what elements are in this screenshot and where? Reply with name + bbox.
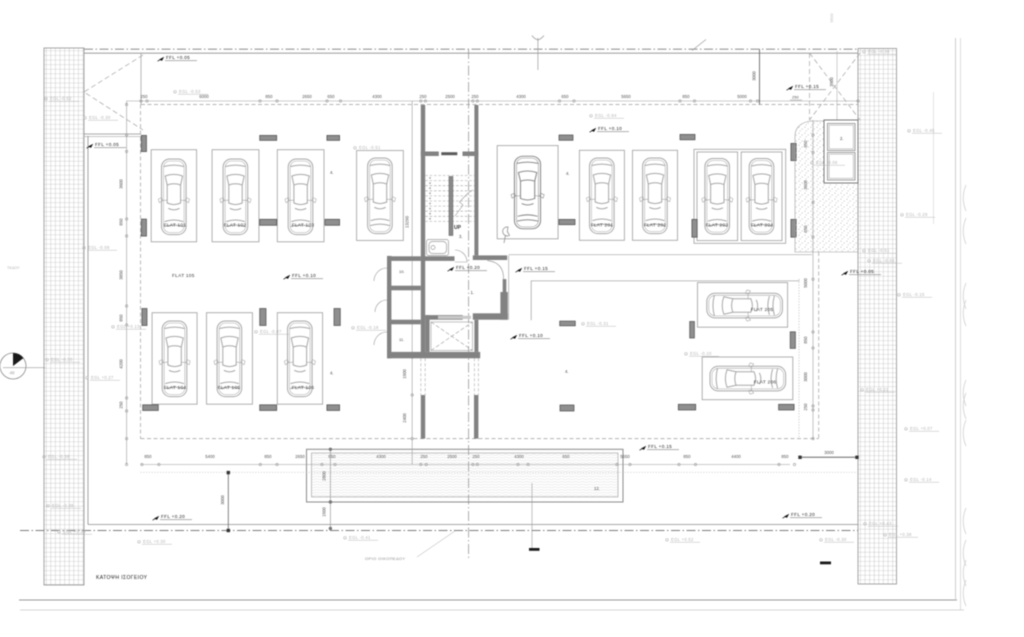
svg-text:FFL +0.10: FFL +0.10: [598, 126, 622, 131]
svg-text:4.: 4.: [566, 171, 570, 176]
svg-text:3000: 3000: [752, 71, 757, 81]
svg-text:EGL +0.34: EGL +0.34: [63, 529, 86, 534]
svg-text:850: 850: [119, 314, 124, 322]
svg-text:EGL -0.30: EGL -0.30: [51, 357, 73, 362]
svg-text:2500: 2500: [445, 94, 455, 99]
svg-text:850: 850: [803, 336, 808, 344]
svg-text:EGL -0.10: EGL -0.10: [690, 351, 712, 356]
svg-text:650: 650: [327, 94, 335, 99]
svg-text:EGL +0.43: EGL +0.43: [869, 521, 892, 526]
svg-text:FLAT 203: FLAT 203: [706, 223, 729, 229]
svg-text:EGL +0.52: EGL +0.52: [671, 537, 694, 542]
svg-text:EGL -0.06: EGL -0.06: [816, 160, 838, 165]
svg-text:FFL +0.05: FFL +0.05: [95, 142, 119, 147]
svg-text:FLAT 206: FLAT 206: [754, 380, 777, 386]
svg-text:13290: 13290: [405, 215, 410, 228]
svg-text:4300: 4300: [372, 94, 382, 99]
svg-text:EGL -0.18: EGL -0.18: [357, 325, 379, 330]
svg-text:850: 850: [144, 454, 152, 459]
svg-text:FLAT 204: FLAT 204: [751, 223, 774, 229]
svg-text:EGL -0.30: EGL -0.30: [89, 115, 111, 120]
svg-text:EGL -0.53: EGL -0.53: [179, 89, 201, 94]
svg-text:9500: 9500: [829, 13, 834, 23]
svg-text:250: 250: [140, 94, 148, 99]
svg-text:EGL -0.51: EGL -0.51: [359, 145, 381, 150]
svg-text:3850: 3850: [119, 270, 124, 280]
svg-text:5650: 5650: [620, 454, 630, 459]
svg-text:3000: 3000: [803, 372, 808, 382]
svg-text:11.: 11.: [399, 337, 404, 342]
svg-text:EGL -0.07: EGL -0.07: [260, 329, 282, 334]
svg-text:4200: 4200: [119, 359, 124, 369]
svg-text:EGL -0.08: EGL -0.08: [88, 245, 110, 250]
svg-text:FFL +0.20: FFL +0.20: [161, 514, 185, 519]
svg-text:EGL -0.36: EGL -0.36: [868, 49, 890, 54]
svg-text:EGL -0.45: EGL -0.45: [913, 128, 935, 133]
svg-text:850: 850: [682, 94, 690, 99]
svg-text:EGL -0.29: EGL -0.29: [906, 212, 928, 217]
svg-text:FFL +0.20: FFL +0.20: [456, 265, 480, 270]
svg-text:FFL +0.10: FFL +0.10: [292, 273, 316, 278]
svg-text:10.: 10.: [399, 269, 405, 274]
svg-text:EGL -0.31: EGL -0.31: [587, 321, 609, 326]
svg-text:4300: 4300: [516, 94, 526, 99]
svg-text:250: 250: [119, 401, 124, 409]
svg-text:4.: 4.: [330, 371, 334, 376]
svg-text:FFL +0.05: FFL +0.05: [166, 55, 190, 60]
svg-text:5000: 5000: [803, 278, 808, 288]
svg-text:1.: 1.: [471, 290, 475, 295]
svg-text:2500: 2500: [447, 454, 457, 459]
svg-text:ΤΕΔΟΥ: ΤΕΔΟΥ: [7, 266, 20, 270]
svg-text:ΚΑΤΟΨΗ ΙΣΟΓΕΙΟΥ: ΚΑΤΟΨΗ ΙΣΟΓΕΙΟΥ: [96, 575, 148, 581]
svg-text:4300: 4300: [514, 454, 524, 459]
svg-text:3600: 3600: [119, 179, 124, 189]
svg-text:650: 650: [561, 94, 569, 99]
svg-text:FFL +0.15: FFL +0.15: [648, 444, 672, 449]
svg-text:-02: -02: [9, 371, 15, 375]
svg-text:EGL +0.21: EGL +0.21: [866, 387, 889, 392]
svg-text:ΟΡΙΟ ΟΙΚΟΠΕΔΟΥ: ΟΡΙΟ ΟΙΚΟΠΕΔΟΥ: [365, 556, 405, 561]
svg-text:FFL +0.15: FFL +0.15: [524, 266, 548, 271]
svg-text:250: 250: [803, 403, 808, 411]
svg-text:EGL -0.06: EGL -0.06: [873, 258, 895, 263]
svg-text:4.: 4.: [565, 369, 569, 374]
svg-text:850: 850: [683, 454, 691, 459]
svg-text:EGL -0.14: EGL -0.14: [910, 477, 932, 482]
svg-text:4400: 4400: [731, 454, 741, 459]
svg-text:4300: 4300: [376, 454, 386, 459]
svg-text:6000: 6000: [199, 94, 209, 99]
svg-text:4.: 4.: [330, 170, 334, 175]
svg-text:5000: 5000: [737, 94, 747, 99]
svg-text:FFL +0.05: FFL +0.05: [850, 269, 874, 274]
svg-text:EGL -0.51: EGL -0.51: [868, 248, 890, 253]
svg-text:650: 650: [328, 454, 336, 459]
svg-text:650: 650: [562, 454, 570, 459]
svg-text:850: 850: [264, 454, 272, 459]
svg-text:FLAT 105: FLAT 105: [218, 385, 241, 391]
svg-text:FFL +0.15: FFL +0.15: [795, 84, 819, 89]
svg-text:5650: 5650: [621, 94, 631, 99]
svg-text:EGL +0.30: EGL +0.30: [143, 539, 166, 544]
svg-text:FLAT 201: FLAT 201: [591, 223, 614, 229]
svg-text:EGL -0.15: EGL -0.15: [903, 292, 925, 297]
svg-text:FFL +0.20: FFL +0.20: [791, 512, 815, 517]
svg-text:FLAT 104: FLAT 104: [164, 385, 187, 391]
svg-text:850: 850: [781, 454, 789, 459]
svg-text:FLAT 103: FLAT 103: [292, 223, 315, 229]
svg-text:2.: 2.: [840, 136, 844, 141]
svg-text:EGL -0.94: EGL -0.94: [595, 113, 617, 118]
svg-text:2650: 2650: [295, 454, 305, 459]
svg-text:3000: 3000: [824, 450, 834, 455]
svg-text:250: 250: [792, 95, 799, 100]
svg-text:2800: 2800: [322, 471, 327, 481]
svg-text:FFL +0.10: FFL +0.10: [519, 333, 543, 338]
svg-text:FLAT 202: FLAT 202: [644, 223, 667, 229]
svg-text:EGL -0.38: EGL -0.38: [52, 503, 74, 508]
svg-text:2650: 2650: [302, 94, 312, 99]
svg-text:250: 250: [419, 94, 427, 99]
svg-text:3500: 3500: [829, 77, 834, 87]
svg-text:EGL +0.27: EGL +0.27: [91, 375, 114, 380]
svg-text:250: 250: [420, 454, 428, 459]
svg-text:2400: 2400: [402, 413, 407, 423]
svg-text:FLAT 102: FLAT 102: [224, 223, 247, 229]
svg-text:850: 850: [119, 218, 124, 226]
svg-text:FLAT 205: FLAT 205: [751, 307, 774, 313]
svg-text:250: 250: [471, 94, 479, 99]
svg-text:5400: 5400: [205, 454, 215, 459]
svg-text:FLAT 101: FLAT 101: [164, 223, 187, 229]
svg-text:3000: 3000: [220, 495, 225, 505]
svg-text:FLAT 105: FLAT 105: [172, 273, 195, 279]
svg-text:EGL +0.07: EGL +0.07: [910, 426, 933, 431]
svg-text:EGL -0.30: EGL -0.30: [825, 537, 847, 542]
svg-text:EGL +0.38: EGL +0.38: [889, 532, 912, 537]
svg-text:FLAT 106: FLAT 106: [292, 385, 315, 391]
svg-text:1500: 1500: [322, 507, 327, 517]
svg-text:UP: UP: [454, 225, 462, 231]
svg-text:EGL +0.13: EGL +0.13: [117, 324, 140, 329]
svg-text:EGL -0.52: EGL -0.52: [50, 96, 72, 101]
svg-text:EGL -0.41: EGL -0.41: [349, 535, 371, 540]
svg-text:850: 850: [265, 94, 273, 99]
svg-text:12.: 12.: [594, 486, 600, 491]
svg-text:3.: 3.: [459, 234, 463, 239]
svg-text:1900: 1900: [402, 369, 407, 379]
svg-text:EGL -0.38: EGL -0.38: [48, 454, 70, 459]
svg-text:250: 250: [472, 454, 480, 459]
